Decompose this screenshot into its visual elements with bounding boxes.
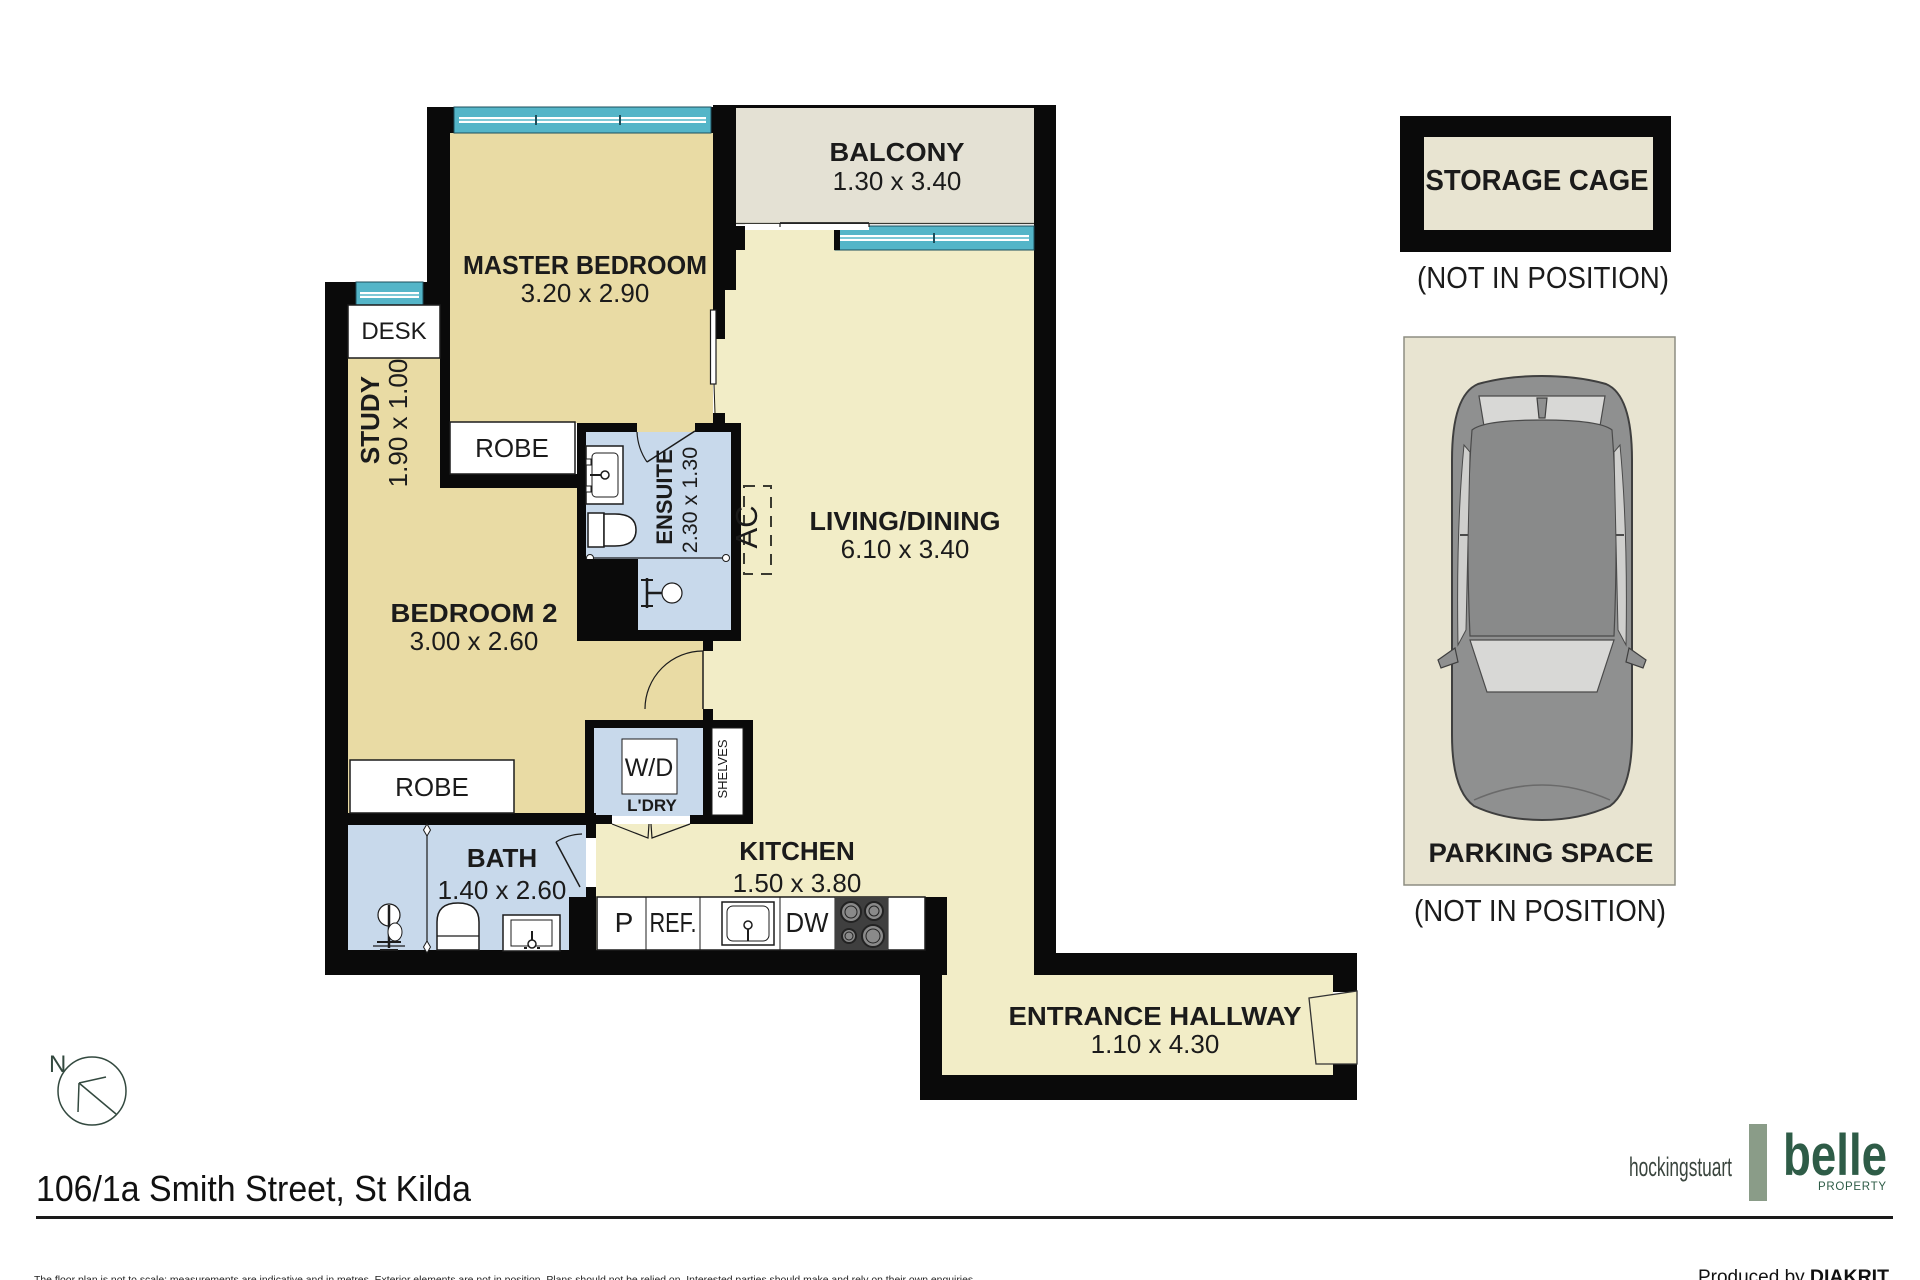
svg-text:2.30 x 1.30: 2.30 x 1.30 — [678, 447, 702, 553]
svg-text:Produced by DIAKRIT: Produced by DIAKRIT — [1698, 1266, 1889, 1280]
svg-text:The floor plan is not to scale: The floor plan is not to scale; measurem… — [34, 1274, 976, 1280]
svg-text:1.10 x 4.30: 1.10 x 4.30 — [1091, 1029, 1220, 1059]
svg-text:PARKING SPACE: PARKING SPACE — [1429, 838, 1654, 868]
svg-text:1.40 x 2.60: 1.40 x 2.60 — [438, 875, 567, 905]
svg-text:SHELVES: SHELVES — [715, 739, 730, 798]
svg-text:AC: AC — [729, 505, 764, 548]
svg-text:BALCONY: BALCONY — [830, 137, 965, 167]
svg-text:3.00 x 2.60: 3.00 x 2.60 — [410, 626, 539, 656]
svg-text:P: P — [615, 907, 634, 938]
svg-text:BATH: BATH — [467, 843, 537, 873]
svg-text:PROPERTY: PROPERTY — [1818, 1181, 1886, 1193]
svg-text:STUDY: STUDY — [355, 376, 385, 464]
svg-text:(NOT IN POSITION): (NOT IN POSITION) — [1414, 893, 1666, 928]
svg-text:ENTRANCE HALLWAY: ENTRANCE HALLWAY — [1009, 1001, 1302, 1031]
svg-text:ENSUITE: ENSUITE — [652, 449, 677, 544]
svg-text:DW: DW — [786, 907, 830, 938]
svg-text:106/1a Smith Street, St Kilda: 106/1a Smith Street, St Kilda — [36, 1168, 472, 1209]
svg-text:belle: belle — [1783, 1123, 1887, 1188]
svg-text:3.20 x 2.90: 3.20 x 2.90 — [521, 278, 650, 308]
svg-text:hockingstuart: hockingstuart — [1629, 1152, 1732, 1182]
svg-text:ROBE: ROBE — [395, 772, 469, 802]
svg-text:L'DRY: L'DRY — [627, 796, 677, 815]
svg-text:KITCHEN: KITCHEN — [739, 836, 855, 866]
svg-text:DESK: DESK — [361, 318, 426, 345]
svg-text:W/D: W/D — [625, 754, 674, 782]
svg-text:(NOT IN POSITION): (NOT IN POSITION) — [1417, 260, 1669, 295]
svg-text:6.10 x 3.40: 6.10 x 3.40 — [841, 534, 970, 564]
svg-text:1.50 x 3.80: 1.50 x 3.80 — [733, 868, 862, 898]
svg-text:BEDROOM 2: BEDROOM 2 — [391, 598, 558, 628]
svg-text:LIVING/DINING: LIVING/DINING — [810, 506, 1001, 536]
svg-text:ROBE: ROBE — [475, 433, 549, 463]
svg-text:REF.: REF. — [650, 907, 697, 938]
svg-text:1.30 x 3.40: 1.30 x 3.40 — [833, 166, 962, 196]
svg-text:1.90 x 1.00: 1.90 x 1.00 — [383, 359, 413, 488]
svg-text:N: N — [49, 1051, 66, 1078]
svg-text:STORAGE CAGE: STORAGE CAGE — [1426, 165, 1649, 197]
svg-text:MASTER BEDROOM: MASTER BEDROOM — [463, 250, 707, 280]
